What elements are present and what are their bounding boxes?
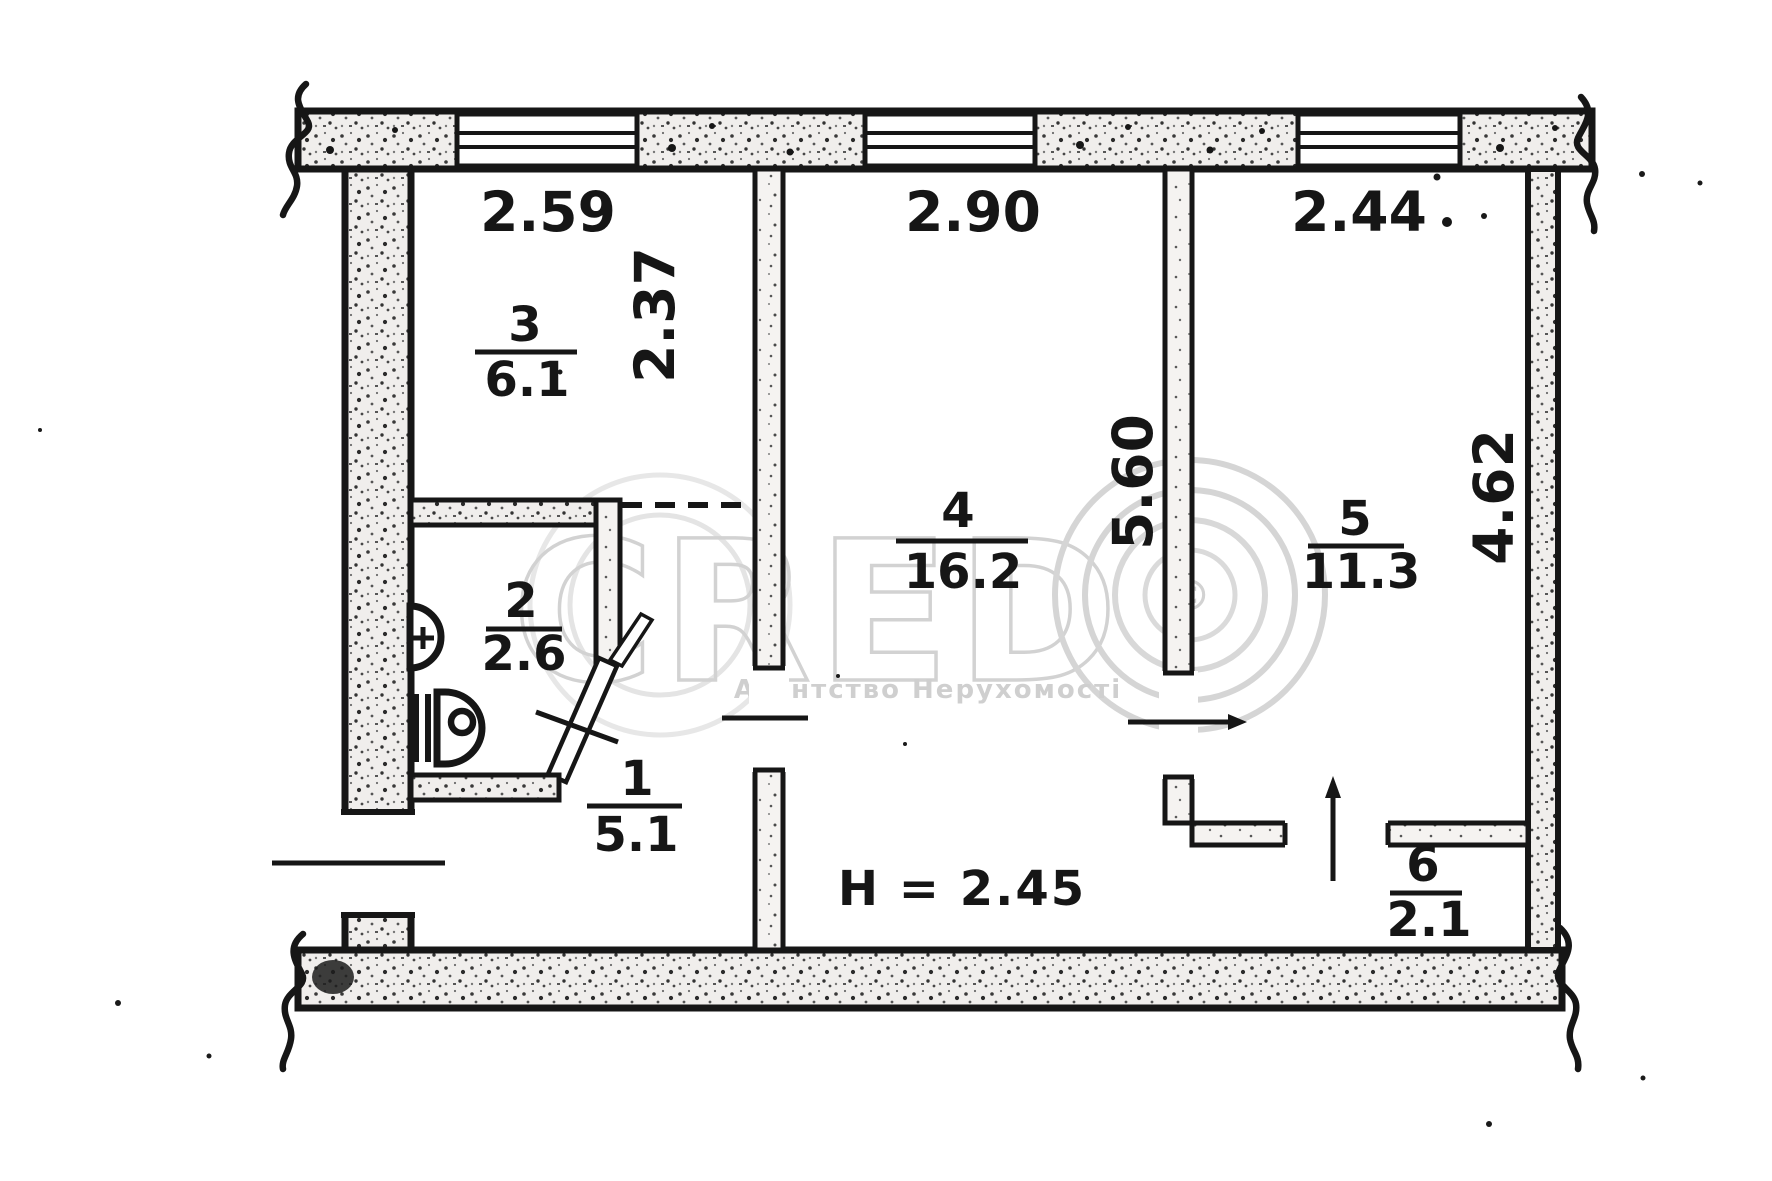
stray-dot: [1442, 217, 1452, 227]
room-3-number: 3: [508, 297, 541, 353]
window-middle: [865, 114, 1035, 166]
room-label-3: 3 6.1: [475, 297, 577, 408]
washbasin-icon: [410, 606, 441, 668]
right-wall-band: [1528, 169, 1558, 950]
dim-room3-depth: 2.37: [623, 247, 687, 383]
door-opening-room6: [1285, 818, 1388, 850]
room-1-area: 5.1: [593, 807, 678, 863]
room-label-5: 5 11.3: [1302, 491, 1420, 600]
window-right: [1298, 114, 1460, 166]
bathroom-wall-top: [411, 500, 618, 525]
partition-room5-room6: [1192, 776, 1528, 881]
bathroom-wall-bottom: [411, 775, 559, 800]
toilet-icon: [416, 692, 482, 764]
door-opening-room5: [1159, 671, 1198, 779]
window-left: [457, 114, 637, 166]
door-tick-arrow-up: [1325, 776, 1341, 798]
room-label-6: 6 2.1: [1386, 837, 1471, 948]
scan-blot: [312, 960, 354, 994]
room-1-number: 1: [620, 751, 653, 807]
exterior-wall-top: [298, 111, 1592, 169]
room-5-area: 11.3: [1302, 544, 1420, 600]
bathroom-wall-right: [596, 500, 620, 664]
room-2-area: 2.6: [481, 626, 566, 682]
dim-window-right: 2.44: [1291, 180, 1427, 244]
room-3-area: 6.1: [484, 352, 569, 408]
room-4-number: 4: [941, 483, 974, 539]
room-label-1: 1 5.1: [587, 751, 682, 863]
floor-plan-page: CRED © Агентство Нерухомості: [0, 0, 1772, 1181]
exterior-wall-bottom: [298, 950, 1562, 1008]
room-2-number: 2: [504, 573, 537, 629]
room-6-area: 2.1: [1386, 892, 1471, 948]
room-4-area: 16.2: [904, 544, 1022, 600]
ceiling-height-note: H = 2.45: [838, 861, 1086, 917]
bottom-wall-band: [298, 950, 1562, 1008]
exterior-wall-left: [272, 169, 445, 950]
dim-window-left: 2.59: [480, 180, 616, 244]
floor-plan-drawing: CRED © Агентство Нерухомості: [0, 0, 1772, 1181]
dim-right-wall: 4.62: [1462, 429, 1526, 565]
room-6-number: 6: [1406, 837, 1439, 893]
dim-center-wall: 5.60: [1101, 414, 1165, 550]
watermark-caption: Агентство Нерухомості: [734, 675, 1122, 705]
dim-window-middle: 2.90: [905, 180, 1041, 244]
room-5-number: 5: [1338, 491, 1371, 547]
